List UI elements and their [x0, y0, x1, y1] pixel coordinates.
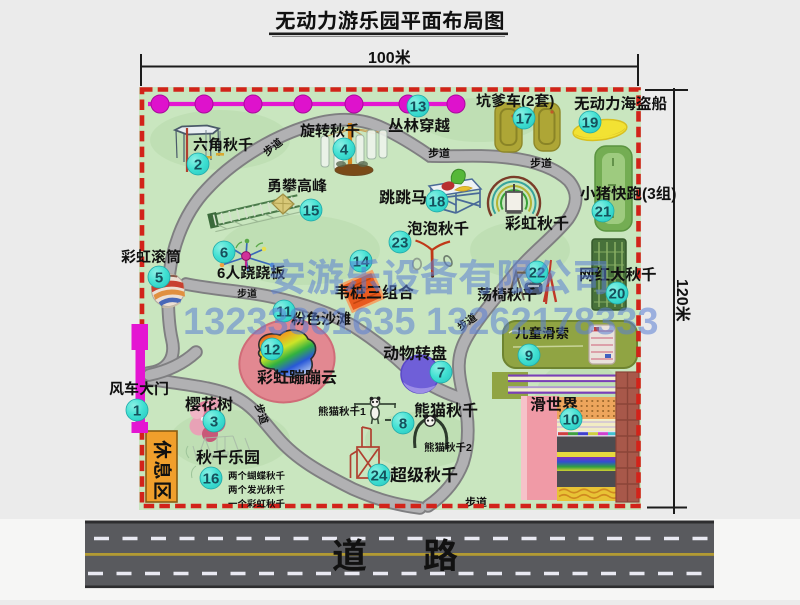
svg-text:2: 2 [194, 154, 202, 175]
svg-text:13233861635 13262178333: 13233861635 13262178333 [183, 290, 659, 345]
svg-text:9: 9 [525, 345, 533, 366]
svg-text:5: 5 [155, 267, 163, 288]
svg-text:勇攀高峰: 勇攀高峰 [267, 175, 327, 196]
svg-text:步道: 步道 [428, 145, 450, 161]
svg-text:旋转秋千: 旋转秋千 [300, 120, 360, 141]
svg-text:19: 19 [582, 112, 599, 133]
svg-text:泡泡秋千: 泡泡秋千 [407, 217, 469, 239]
svg-text:100米: 100米 [368, 44, 411, 68]
svg-text:24: 24 [371, 465, 388, 486]
svg-text:步道: 步道 [530, 155, 552, 171]
svg-text:3: 3 [210, 411, 218, 432]
svg-text:彩虹秋千: 彩虹秋千 [505, 210, 569, 234]
svg-text:13: 13 [410, 96, 427, 117]
svg-text:熊猫秋千: 熊猫秋千 [414, 397, 478, 421]
svg-text:4: 4 [340, 139, 349, 160]
svg-text:21: 21 [595, 201, 612, 222]
svg-text:两个发光秋千: 两个发光秋千 [228, 482, 286, 496]
svg-text:彩虹滚筒: 彩虹滚筒 [121, 246, 181, 267]
svg-text:120米: 120米 [672, 279, 696, 322]
svg-text:跳跳马: 跳跳马 [379, 184, 427, 208]
svg-text:18: 18 [429, 191, 446, 212]
svg-text:路: 路 [423, 528, 458, 579]
svg-text:8: 8 [399, 413, 407, 434]
svg-text:六角秋千: 六角秋千 [193, 134, 253, 155]
svg-text:彩虹蹦蹦云: 彩虹蹦蹦云 [257, 364, 337, 388]
svg-text:风车大门: 风车大门 [109, 378, 169, 399]
svg-text:秋千乐园: 秋千乐园 [196, 444, 260, 468]
svg-text:熊猫秋千1: 熊猫秋千1 [318, 404, 366, 419]
svg-text:超级秋千: 超级秋千 [390, 461, 458, 486]
svg-text:15: 15 [303, 200, 320, 221]
svg-text:17: 17 [516, 108, 533, 129]
svg-text:熊猫秋千2: 熊猫秋千2 [424, 440, 472, 455]
svg-text:道: 道 [332, 528, 367, 579]
svg-text:7: 7 [437, 362, 445, 383]
svg-text:无动力游乐园平面布局图: 无动力游乐园平面布局图 [275, 4, 505, 34]
svg-text:6: 6 [220, 242, 228, 263]
svg-text:休息区: 休息区 [150, 440, 177, 502]
svg-text:两个蝴蝶秋千: 两个蝴蝶秋千 [228, 468, 286, 482]
svg-text:1: 1 [133, 400, 141, 421]
svg-text:一个彩虹秋千: 一个彩虹秋千 [228, 496, 286, 510]
svg-text:10: 10 [563, 409, 580, 430]
svg-text:16: 16 [203, 468, 220, 489]
